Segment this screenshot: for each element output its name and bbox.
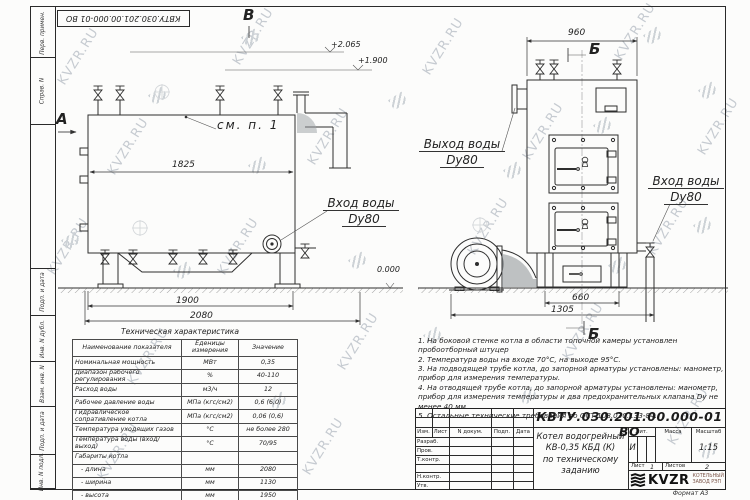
company-subtitle: КОТЕЛЬНЫЙ ЗАВОД РЭП	[693, 474, 724, 486]
elevation-zero: 0.000	[377, 265, 400, 274]
sheet-value: 1	[650, 463, 654, 471]
water-outlet-dn: Dу80	[440, 153, 484, 168]
elevation-1900: +1.900	[358, 56, 388, 65]
col-podp: Подп.	[491, 429, 513, 435]
col-header-name: Наименование показателя	[73, 340, 182, 357]
sheets-label: Листов	[665, 463, 685, 469]
table-row: Номинальная мощностьМВт0,35	[73, 357, 298, 370]
table-row: Температура уходящих газов°Сне более 280	[73, 424, 298, 437]
table-row: - ширинамм1130	[73, 477, 298, 490]
lit-value: И	[628, 443, 637, 453]
row-nkontr: Н.контр.	[417, 474, 441, 480]
row-prov: Пров.	[417, 448, 433, 454]
dim-1305: 1305	[551, 305, 574, 315]
left-view-leaders	[58, 26, 394, 288]
product-name: Котел водогрейный КВ-0,35 КБД (К) по тех…	[533, 431, 628, 476]
dim-2080: 2080	[190, 311, 213, 321]
sheets-value: 2	[705, 463, 709, 471]
water-inlet-label: Вход воды	[323, 196, 399, 211]
company-logo: KVZR КОТЕЛЬНЫЙ ЗАВОД РЭП	[630, 471, 724, 489]
section-label-v: В	[243, 6, 254, 24]
dim-960: 960	[568, 28, 585, 38]
water-inlet2-dn: Dу80	[664, 190, 708, 205]
scale-header: Масштаб	[691, 429, 726, 435]
section-label-b-top: Б	[589, 40, 600, 58]
col-data: Дата	[513, 429, 533, 435]
note-4: 4. На отводящей трубе котла, до запорной…	[418, 383, 724, 411]
table-row: Диапазон рабочего регулирования%40-110	[73, 370, 298, 384]
tech-table-title: Техническая характеристика	[72, 327, 288, 336]
table-row: Гидравлическое сопративление котлаМПа (к…	[73, 410, 298, 424]
table-row: Расход водым3/ч12	[73, 384, 298, 397]
drawing-sheet: KVZR.RU KVZR.RU KVZR.RU KVZR.RU KVZR.RU …	[0, 0, 750, 500]
col-header-units: Еденицыизмерения	[182, 340, 239, 357]
format-label: Формат А3	[655, 490, 726, 497]
row-utv: Утв.	[417, 483, 428, 489]
water-outlet-label: Выход воды	[419, 137, 505, 152]
water-inlet-dn: Dу80	[342, 212, 386, 227]
scale-value: 1:15	[691, 443, 726, 453]
tech-table-header: Наименование показателя Еденицыизмерения…	[73, 340, 298, 357]
kvzr-logo-icon	[630, 473, 646, 487]
row-tkontr: Т.контр.	[417, 457, 440, 463]
col-list: Лист	[432, 429, 449, 435]
elevation-2065: +2.065	[331, 40, 361, 49]
doc-number: КВТУ.030.201.00.000-01 ВО	[533, 409, 726, 426]
water-inlet2-label: Вход воды	[648, 174, 724, 189]
see-note-label: см. п. 1	[217, 118, 279, 132]
tech-table: Наименование показателя Еденицыизмерения…	[72, 339, 298, 500]
note-1: 1. На боковой стенке котла в области топ…	[418, 336, 724, 355]
table-row: - высотамм1950	[73, 490, 298, 500]
table-row: - длинамм2080	[73, 464, 298, 477]
table-row: Температура воды (вход/выход)°С70/95	[73, 437, 298, 451]
col-izm: Изм.	[415, 429, 432, 435]
company-name: KVZR	[648, 473, 690, 488]
section-label-a: А	[56, 110, 68, 128]
dim-1825: 1825	[172, 160, 195, 170]
dim-1900: 1900	[176, 296, 199, 306]
table-row: Рабочее давление водыМПа (кгс/см2)0,6 (6…	[73, 397, 298, 410]
lit-header: Лит.	[628, 429, 655, 435]
col-header-value: Значение	[239, 340, 298, 357]
sheet-label: Лист	[631, 463, 645, 469]
row-razrab: Разраб.	[417, 439, 438, 445]
note-3: 3. На подводящей трубе котла, до запорно…	[418, 364, 724, 383]
note-2: 2. Температура воды на входе 70°С, на вы…	[418, 355, 724, 364]
mass-header: Масса	[655, 429, 691, 435]
col-ndoc: N докум.	[449, 429, 491, 435]
dim-660: 660	[572, 293, 589, 303]
left-view-dimensions	[85, 172, 360, 325]
table-row: Габариты котла	[73, 451, 298, 464]
